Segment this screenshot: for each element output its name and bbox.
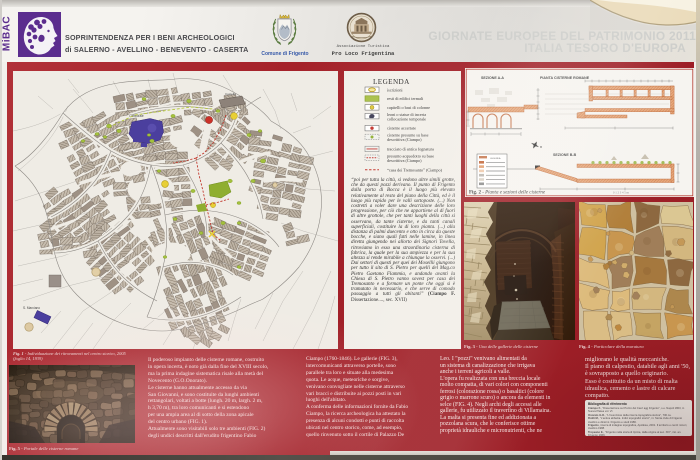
svg-text:resti di edifici termali: resti di edifici termali bbox=[387, 96, 424, 101]
svg-text:Castello: Castello bbox=[225, 92, 236, 96]
svg-text:“casa dei Tremosanto” (Ciampo): “casa dei Tremosanto” (Ciampo) bbox=[387, 167, 443, 172]
svg-text:S. Marciano: S. Marciano bbox=[23, 306, 40, 310]
svg-text:LEGENDA: LEGENDA bbox=[373, 78, 410, 86]
svg-text:LEGENDA: LEGENDA bbox=[490, 157, 501, 160]
svg-text:cisterne accertate: cisterne accertate bbox=[387, 126, 416, 131]
svg-text:0 1 2 3 4 5 m: 0 1 2 3 4 5 m bbox=[613, 191, 630, 195]
svg-text:Fig. 2 - Pianta e sezioni dell: Fig. 2 - Pianta e sezioni delle cisterne bbox=[469, 191, 546, 196]
svg-text:descrittiva (Ciampo): descrittiva (Ciampo) bbox=[387, 137, 422, 142]
svg-text:tracciato di antica fognatura: tracciato di antica fognatura bbox=[387, 146, 434, 151]
svg-text:SEZIONE A-A: SEZIONE A-A bbox=[481, 76, 504, 80]
svg-text:collocazione temporale: collocazione temporale bbox=[387, 116, 426, 121]
svg-text:PIANTA CISTERNE ROMANE: PIANTA CISTERNE ROMANE bbox=[540, 76, 590, 80]
svg-text:descrittiva (Ciampo): descrittiva (Ciampo) bbox=[387, 158, 422, 163]
svg-text:SEZIONE B-B: SEZIONE B-B bbox=[553, 153, 577, 157]
svg-text:iscrizioni: iscrizioni bbox=[387, 87, 403, 92]
svg-text:capitelli o basi di colonne: capitelli o basi di colonne bbox=[387, 105, 430, 110]
